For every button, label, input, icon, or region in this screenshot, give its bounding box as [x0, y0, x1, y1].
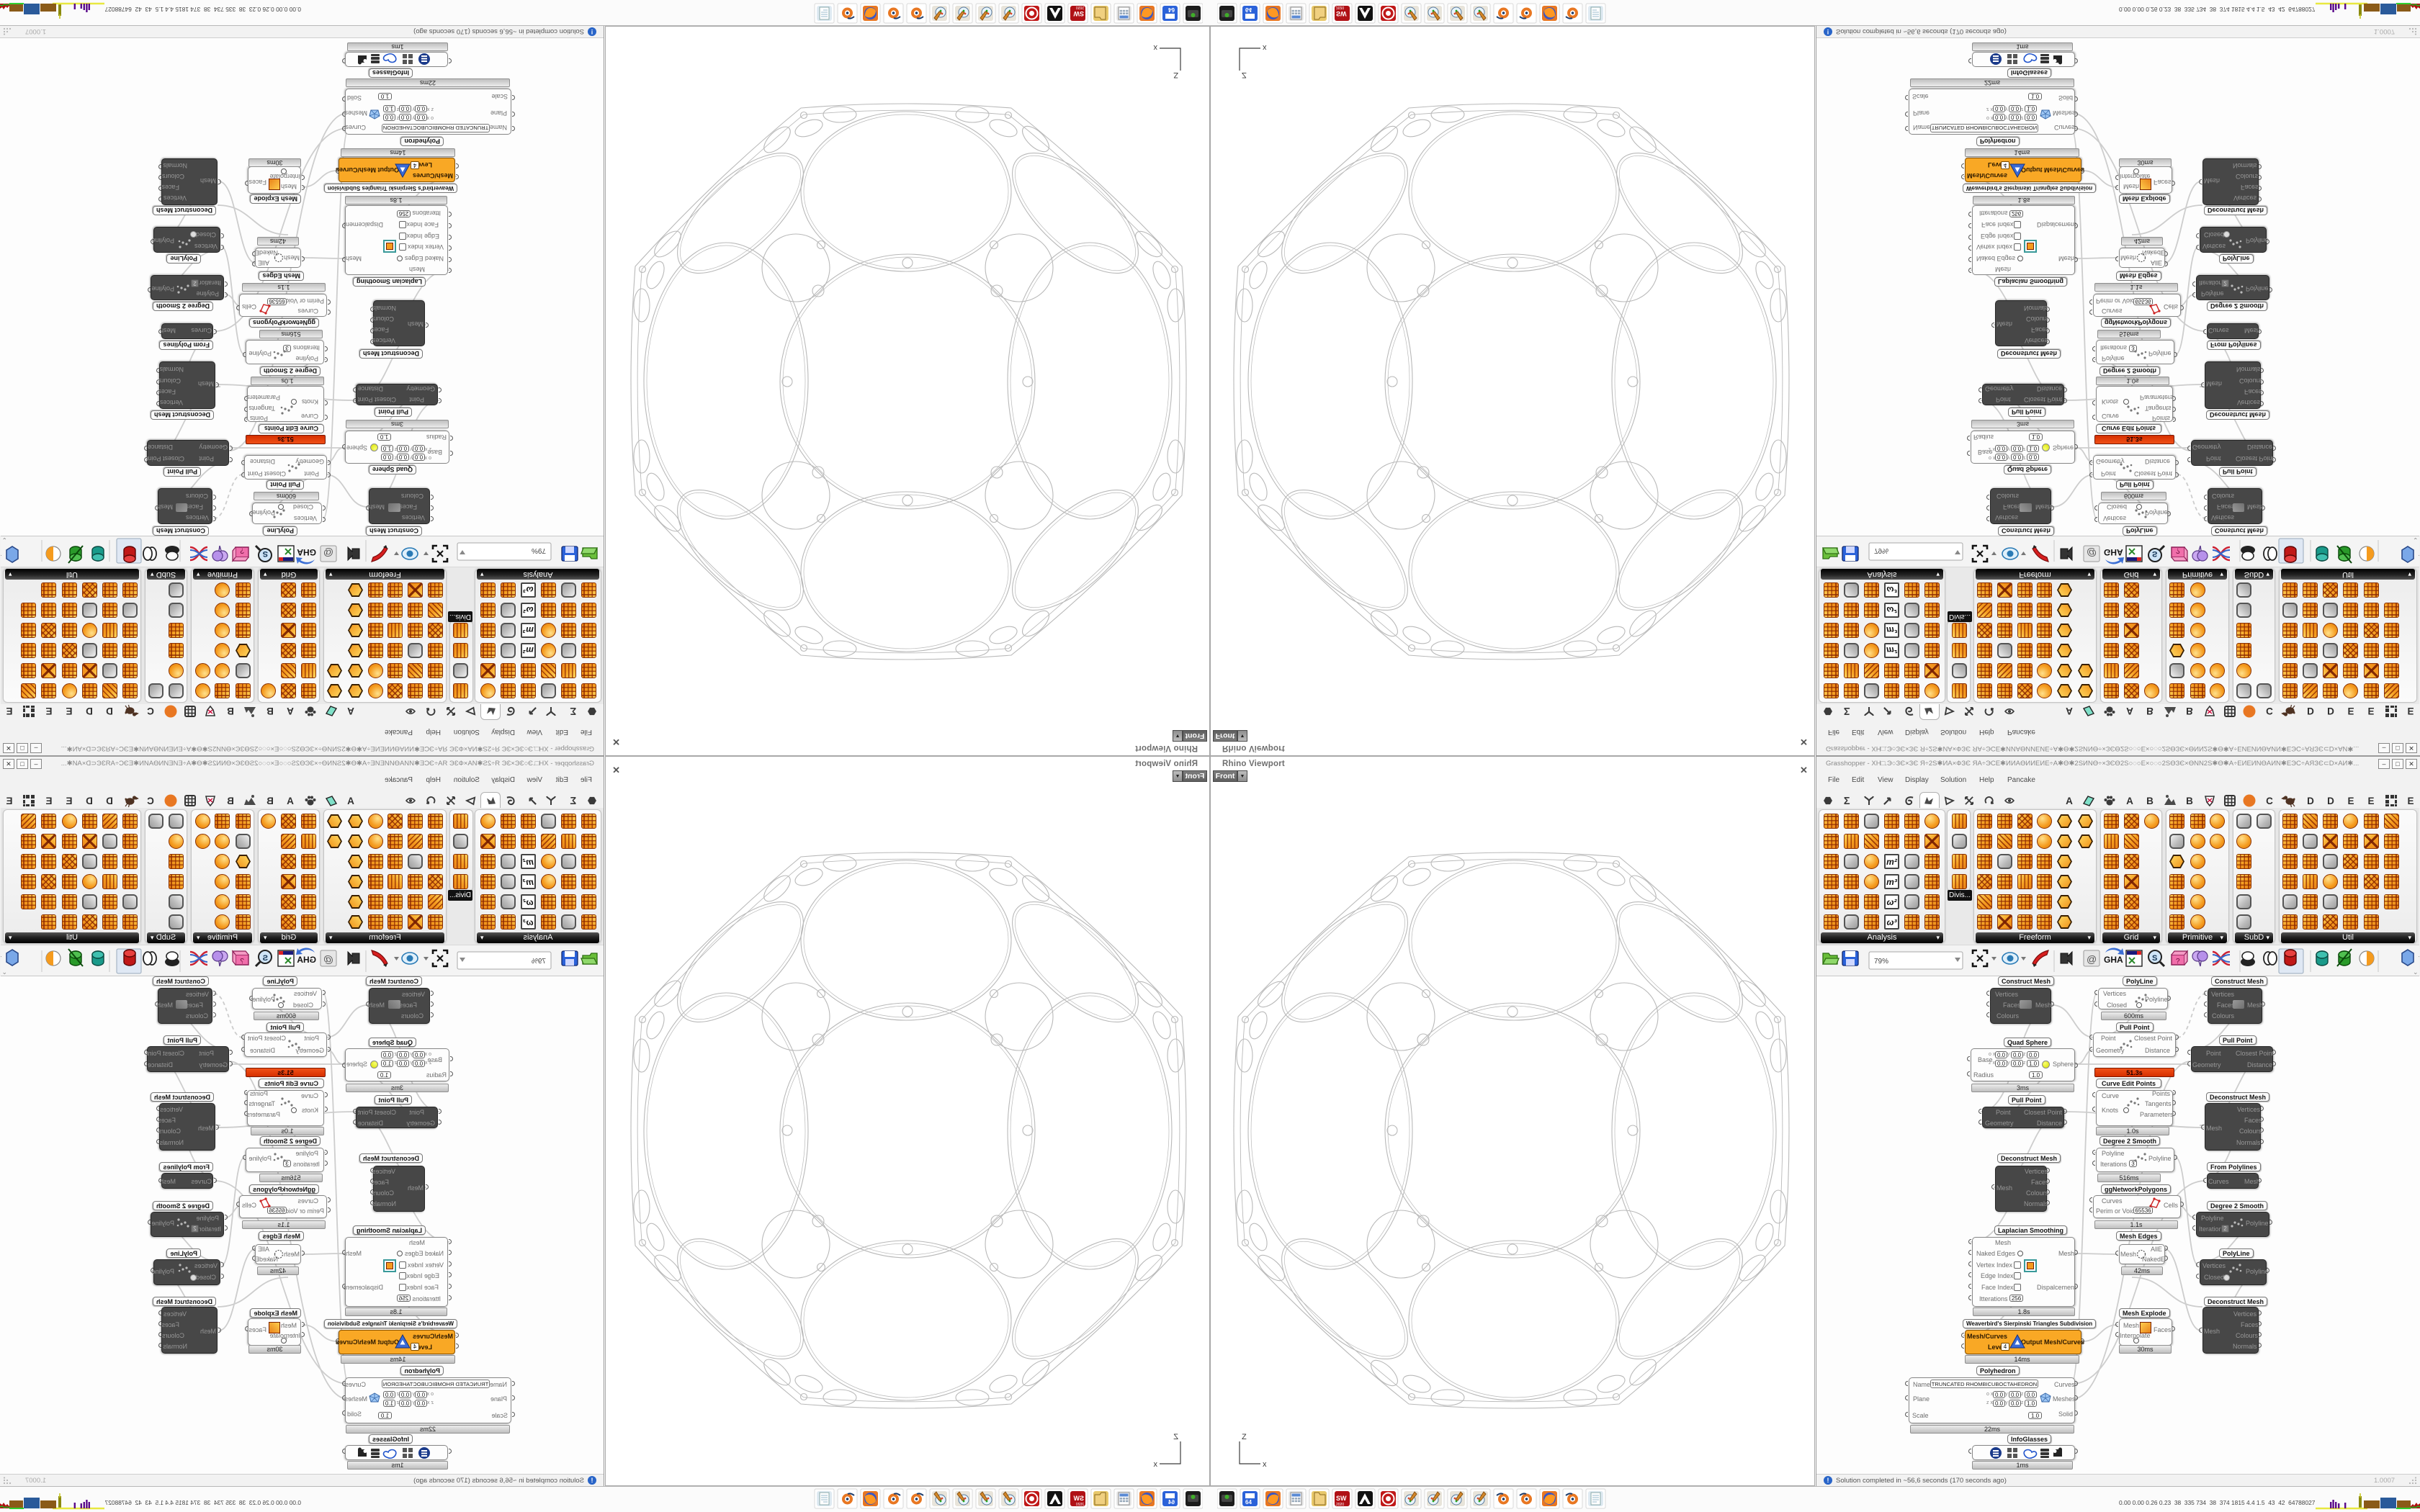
svg-text:x: x [1263, 43, 1267, 52]
svg-text:C: C [147, 706, 154, 716]
svg-text:D: D [2307, 706, 2314, 716]
svg-text:E: E [2407, 706, 2414, 716]
svg-text:64: 64 [1245, 6, 1252, 13]
svg-text:D: D [106, 706, 113, 716]
svg-text:A: A [287, 706, 294, 716]
svg-text:A: A [2126, 706, 2133, 716]
svg-text:GHA: GHA [297, 547, 316, 557]
svg-text:?: ? [240, 546, 244, 554]
svg-text:Σ: Σ [1844, 796, 1850, 807]
svg-text:B: B [2146, 706, 2154, 716]
svg-text:A: A [287, 796, 294, 806]
svg-text:D: D [86, 796, 93, 806]
svg-text:A: A [347, 796, 354, 806]
svg-text:E: E [66, 706, 72, 716]
svg-text:D: D [86, 706, 93, 716]
svg-text:?: ? [2176, 546, 2180, 554]
svg-text:SW: SW [1073, 1495, 1084, 1502]
svg-text:S: S [2152, 549, 2157, 558]
svg-text:SW: SW [1336, 10, 1347, 17]
svg-text:D: D [106, 796, 113, 806]
svg-text:64: 64 [1168, 1499, 1175, 1506]
svg-text:B: B [227, 796, 234, 806]
svg-text:Σ: Σ [570, 705, 576, 716]
svg-text:x: x [1153, 43, 1157, 52]
svg-text:79%: 79% [532, 546, 546, 554]
svg-text:79%: 79% [532, 958, 546, 966]
svg-text:E: E [45, 706, 52, 716]
svg-text:E: E [2367, 706, 2374, 716]
svg-text:C: C [147, 796, 154, 806]
svg-text:C: C [2266, 796, 2273, 806]
svg-text:@: @ [2087, 547, 2097, 559]
svg-text:GHA: GHA [297, 955, 316, 965]
svg-text:2020: 2020 [1076, 1503, 1084, 1507]
svg-text:@: @ [323, 547, 333, 559]
svg-text:E: E [45, 796, 52, 806]
svg-text:64: 64 [1168, 6, 1175, 13]
svg-text:B: B [2186, 796, 2193, 806]
svg-text:Z: Z [1173, 71, 1178, 79]
svg-text:2020: 2020 [1336, 1503, 1344, 1507]
svg-text:B: B [266, 706, 274, 716]
svg-text:E: E [2407, 796, 2414, 806]
svg-text:E: E [2347, 796, 2354, 806]
svg-text:S: S [2152, 954, 2157, 963]
svg-text:A: A [2126, 796, 2133, 806]
svg-text:SW: SW [1336, 1495, 1347, 1502]
svg-text:C: C [2266, 706, 2273, 716]
svg-text:GHA: GHA [2104, 955, 2123, 965]
svg-text:E: E [6, 706, 12, 716]
svg-text:E: E [6, 796, 12, 806]
svg-text:GHA: GHA [2104, 547, 2123, 557]
svg-text:2020: 2020 [1076, 5, 1084, 9]
svg-text:B: B [266, 796, 274, 806]
svg-text:64: 64 [1245, 1499, 1252, 1506]
svg-text:D: D [2327, 706, 2334, 716]
svg-text:B: B [2146, 796, 2154, 806]
svg-text:2020: 2020 [1336, 5, 1344, 9]
svg-text:79%: 79% [1874, 546, 1888, 554]
svg-text:D: D [2327, 796, 2334, 806]
svg-text:B: B [227, 706, 234, 716]
svg-text:D: D [2307, 796, 2314, 806]
svg-text:?: ? [2176, 958, 2180, 966]
svg-text:S: S [263, 954, 268, 963]
svg-text:Z: Z [1173, 1433, 1178, 1441]
svg-text:Z: Z [1242, 1433, 1247, 1441]
svg-text:Z: Z [1242, 71, 1247, 79]
svg-text:x: x [1263, 1460, 1267, 1469]
svg-text:E: E [66, 796, 72, 806]
svg-text:E: E [2367, 796, 2374, 806]
svg-text:x: x [1153, 1460, 1157, 1469]
svg-text:79%: 79% [1874, 958, 1888, 966]
svg-text:A: A [2066, 796, 2073, 806]
svg-text:@: @ [2087, 953, 2097, 965]
svg-text:A: A [2066, 706, 2073, 716]
svg-text:Σ: Σ [570, 796, 576, 807]
svg-text:@: @ [323, 953, 333, 965]
svg-text:S: S [263, 549, 268, 558]
svg-text:E: E [2347, 706, 2354, 716]
svg-text:?: ? [240, 958, 244, 966]
svg-text:A: A [347, 706, 354, 716]
svg-text:SW: SW [1073, 10, 1084, 17]
svg-text:B: B [2186, 706, 2193, 716]
svg-text:Σ: Σ [1844, 705, 1850, 716]
